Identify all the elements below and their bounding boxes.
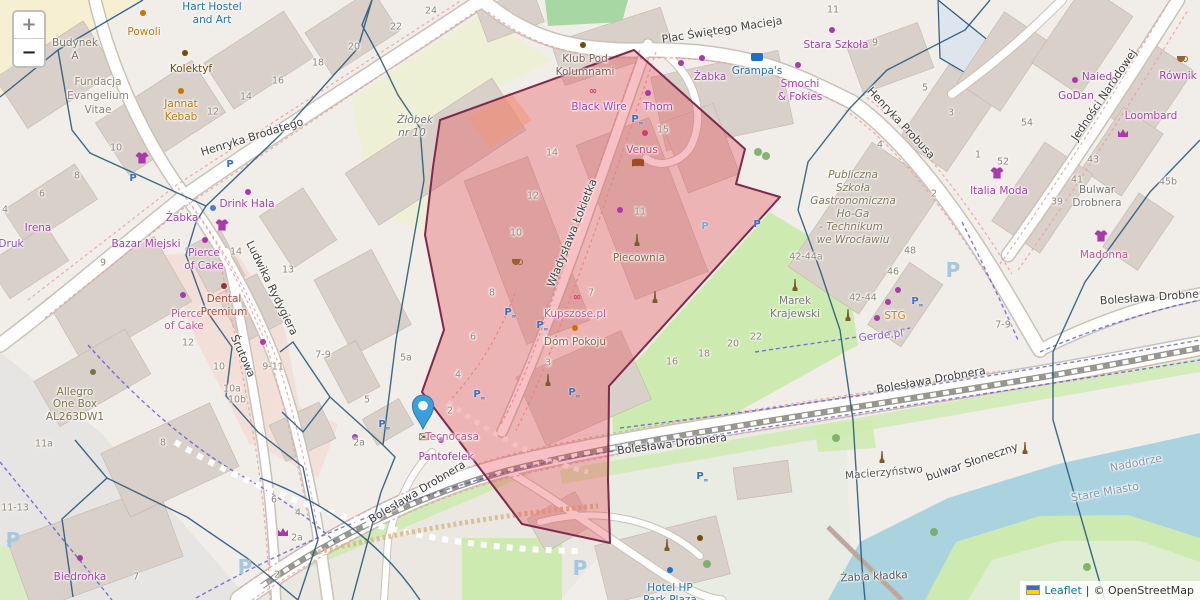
zoom-out-button[interactable]: − [14, 39, 44, 66]
attribution-bar: Leaflet | © OpenStreetMap [1020, 581, 1200, 600]
location-marker[interactable] [410, 394, 436, 434]
zoom-control: + − [12, 10, 46, 68]
ukraine-flag-icon [1026, 585, 1040, 595]
zoom-in-button[interactable]: + [14, 12, 44, 39]
leaflet-link[interactable]: Leaflet [1044, 584, 1081, 597]
attribution-separator: | [1086, 584, 1090, 597]
osm-attribution: © OpenStreetMap [1093, 584, 1194, 597]
base-map [0, 0, 1200, 600]
map-canvas[interactable]: PPPPPPPPPPPPPPPP✉∞∞ Henryka BrodategoPla… [0, 0, 1200, 600]
